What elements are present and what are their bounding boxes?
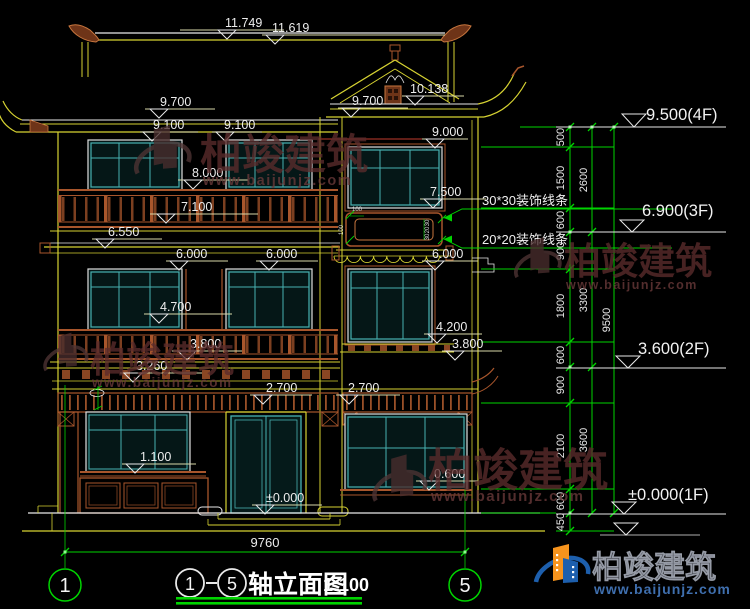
axis-bubble-5: 5 <box>449 569 481 601</box>
swallowtail-eave-upper <box>478 74 514 104</box>
micro-dim: 30 <box>425 233 431 240</box>
dim-label: 7.100 <box>181 200 212 214</box>
chain-dim: 600 <box>555 346 567 364</box>
chain-dim: 1800 <box>555 294 567 318</box>
floor-level-labels: 9.500(4F) 6.900(3F) 3.600(2F) ±0.000(1F) <box>628 106 718 504</box>
title-axis-end: 5 <box>227 574 237 594</box>
micro-dim: 100 <box>339 224 345 235</box>
level-3f-label: 6.900(3F) <box>642 202 714 220</box>
watermark-url: www.baijunjz.com <box>202 173 352 189</box>
chain-dim: 2600 <box>578 168 590 192</box>
window-3f-mid <box>186 269 312 330</box>
panel-micro-dimensions: 100 100 30 20 30 <box>339 207 431 240</box>
title-scale: 1:100 <box>323 575 369 595</box>
watermark-url: www.baijunjz.com <box>430 488 584 505</box>
level-4f-label: 9.500(4F) <box>646 106 718 124</box>
level-1f-label: ±0.000(1F) <box>628 486 709 504</box>
drawing-title: 1 5 轴立面图 1:100 <box>176 569 369 605</box>
dim-label: 9.700 <box>160 95 191 109</box>
title-axis-start: 1 <box>185 574 195 594</box>
dim-label: 2.700 <box>266 381 297 395</box>
watermark-url: www.baijunjz.com <box>91 375 233 390</box>
dim-label: 11.749 <box>225 16 262 30</box>
dim-label: 9.700 <box>352 94 383 108</box>
watermark-url: www.baijunjz.com <box>565 278 698 292</box>
overall-width-dim: 9760 <box>251 535 280 550</box>
dim-label: ±0.000 <box>266 491 304 505</box>
gable-cloud-ornament <box>386 76 404 83</box>
dim-label: 1.100 <box>140 450 171 464</box>
chain-dim: 9500 <box>601 308 613 332</box>
ridge-curl-right <box>441 25 471 42</box>
watermark-brand: 柏竣建筑 <box>90 339 234 380</box>
watermark-brand: 柏竣建筑 <box>200 131 368 178</box>
decorative-balcony-panel <box>346 211 446 246</box>
shopfront-window-left <box>60 412 206 513</box>
dim-label: 6.000 <box>266 247 297 261</box>
deco-molding-30-label: 30*30装饰线条 <box>482 193 568 208</box>
chain-dim: 1500 <box>555 166 567 190</box>
axis-bubble-1-label: 1 <box>59 575 70 597</box>
watermark-brand: 柏竣建筑 <box>564 240 712 282</box>
brand-logo: 柏竣建筑 www.baijunjz.com <box>536 544 731 597</box>
dim-label: 4.700 <box>160 300 191 314</box>
dim-label: 11.619 <box>272 21 309 35</box>
chain-dim: 500 <box>555 128 567 146</box>
brand-logo-name: 柏竣建筑 <box>592 550 716 585</box>
dim-label: 2.700 <box>348 381 379 395</box>
chain-dim: 900 <box>555 376 567 394</box>
title-underline-1 <box>176 597 362 600</box>
chain-dim: 450 <box>555 513 567 531</box>
micro-dim: 30 <box>425 219 431 226</box>
dim-label: 4.200 <box>436 320 467 334</box>
cad-elevation-screenshot: 1 5 30*30装饰线条 20*20装饰线条 11.749 11.619 10… <box>0 0 750 609</box>
micro-dim: 100 <box>352 207 363 213</box>
dim-label: 7.500 <box>430 185 461 199</box>
level-2f-label: 3.600(2F) <box>638 340 710 358</box>
dim-label: 10.138 <box>410 82 448 96</box>
dim-label: 9.100 <box>224 118 255 132</box>
dim-label: 6.550 <box>108 225 139 239</box>
gable-ornament-block <box>385 86 401 104</box>
dim-label: 9.000 <box>432 125 463 139</box>
brand-logo-icon <box>536 544 588 583</box>
micro-dim: 20 <box>425 226 431 233</box>
dim-label: 6.000 <box>176 247 207 261</box>
dim-label: 6.000 <box>432 247 463 261</box>
title-underline-2 <box>176 602 362 605</box>
axis-bubble-5-label: 5 <box>459 575 470 597</box>
dim-label: 3.800 <box>452 337 483 351</box>
elevation-drawing-canvas: 1 5 30*30装饰线条 20*20装饰线条 11.749 11.619 10… <box>0 0 750 609</box>
axis-bubble-1: 1 <box>49 569 81 601</box>
ridge-curl-left <box>69 25 99 42</box>
brand-logo-url: www.baijunjz.com <box>593 581 731 597</box>
chain-dim: 600 <box>555 211 567 229</box>
bulkhead-panels <box>80 478 208 513</box>
